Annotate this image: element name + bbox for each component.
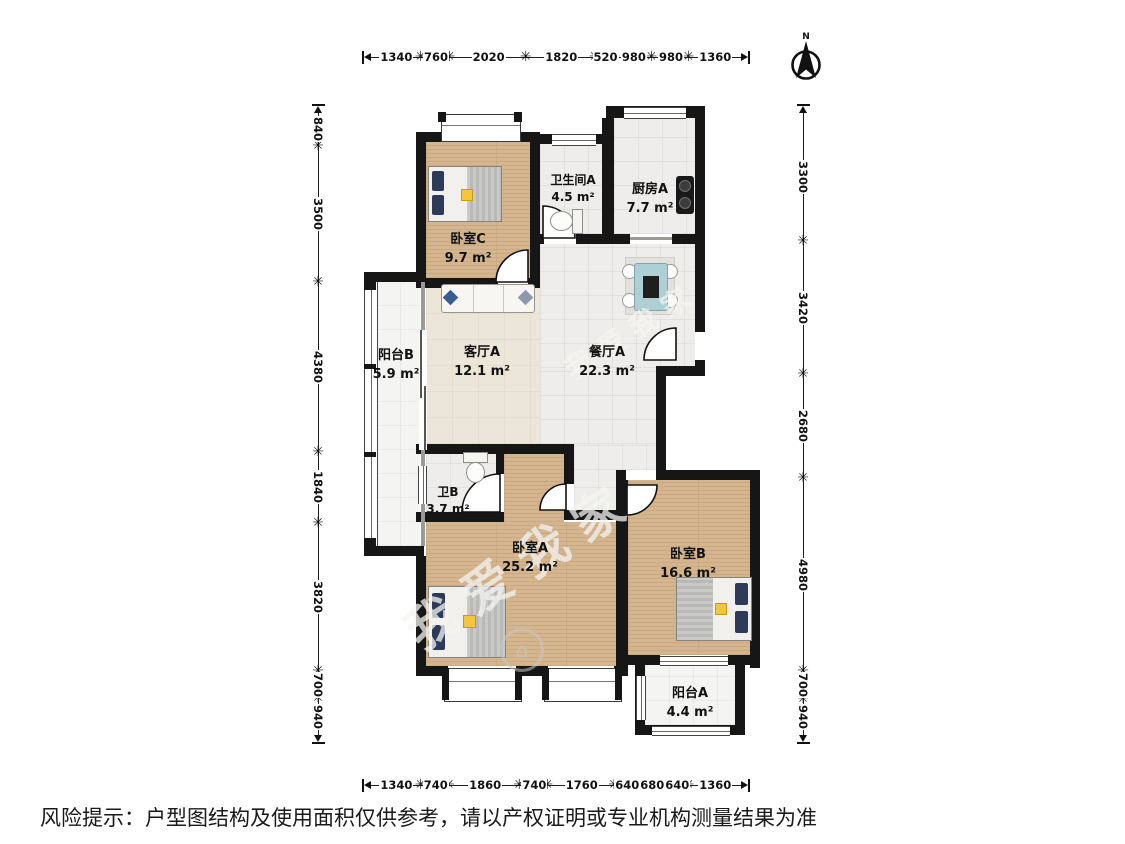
wall (416, 556, 426, 676)
wall (576, 234, 630, 244)
window-mullion (364, 452, 376, 457)
wall (564, 454, 574, 484)
wall (695, 246, 705, 332)
floorplan-canvas: 我爱我家 我爱我家 ⌂ 卧室C9.7 m² 卫生间A4.5 m² 厨房A7.7 … (0, 0, 1125, 844)
window-wall-balcony-b (364, 282, 378, 546)
bay-window-bedroom-a-1 (444, 668, 522, 702)
label-dining-a: 餐厅A22.3 m² (552, 344, 662, 382)
window-bathroom-a (552, 134, 596, 146)
dim-col-left: 840 ✳3500 ✳4380 ✳1840 ✳3820 ✳700 ✳940 (306, 104, 330, 744)
sofa (441, 284, 535, 313)
window-post (615, 668, 622, 700)
floor-hallway (574, 470, 616, 512)
window-post (514, 112, 522, 122)
wall (616, 480, 628, 666)
window-post (542, 668, 549, 700)
wall (616, 470, 626, 480)
dining-table (634, 263, 668, 311)
window-post (364, 282, 376, 290)
kitchen-passage-line (630, 237, 672, 240)
bed-bedroom-b (676, 577, 752, 641)
label-bedroom-b: 卧室B16.6 m² (633, 546, 743, 584)
bay-window-bedroom-c (441, 114, 521, 142)
dim-col-right: 3300 ✳3420 ✳2680 ✳4980 ✳700 ✳940 (791, 104, 815, 744)
wall (656, 366, 705, 376)
wall (530, 234, 544, 244)
label-balcony-a: 阳台A4.4 m² (635, 685, 745, 723)
toilet-bathroom-a (550, 208, 584, 236)
wall (656, 470, 760, 480)
window-post (442, 668, 449, 700)
window-post (515, 668, 522, 700)
toilet-b-fixture (462, 452, 488, 482)
wall (695, 106, 705, 246)
wall (728, 655, 760, 665)
window-post (438, 112, 446, 122)
wall (364, 546, 424, 556)
dim-row-top: 1340 ✳760 ✳2020 ✳1820 ✳520 ✳980 ✳980 ✳13… (362, 45, 750, 69)
window-balcony-a-bottom (652, 726, 730, 736)
wall (530, 142, 540, 288)
dim-row-bottom: 1340 ✳740 ✳1860 ✳740 ✳1760 ✳640 ✳680 ✳64… (362, 773, 750, 797)
wall (602, 118, 614, 138)
floor-alcove (504, 454, 564, 522)
wall (656, 376, 666, 472)
bed-bedroom-a (428, 586, 506, 658)
label-bedroom-c: 卧室C9.7 m² (413, 231, 523, 269)
wall (496, 454, 504, 474)
window-kitchen-a (624, 107, 686, 119)
label-bedroom-a: 卧室A25.2 m² (475, 540, 585, 578)
bay-window-bedroom-a-2 (544, 668, 622, 702)
disclaimer-text: 风险提示：户型图结构及使用面积仅供参考，请以产权证明或专业机构测量结果为准 (40, 802, 817, 832)
bed-bedroom-c (428, 166, 502, 222)
window-balcony-a-top (660, 656, 728, 666)
north-compass: N (783, 28, 829, 86)
dining-set (625, 257, 675, 315)
label-toilet-b: 卫B3.7 m² (393, 484, 503, 519)
window-post (364, 538, 376, 546)
north-label: N (802, 32, 810, 42)
label-kitchen-a: 厨房A7.7 m² (595, 181, 705, 219)
wall (672, 234, 705, 244)
wall (416, 444, 574, 454)
label-living-a: 客厅A12.1 m² (427, 344, 537, 382)
wall (364, 272, 424, 282)
floor-dining-a3 (574, 444, 656, 470)
